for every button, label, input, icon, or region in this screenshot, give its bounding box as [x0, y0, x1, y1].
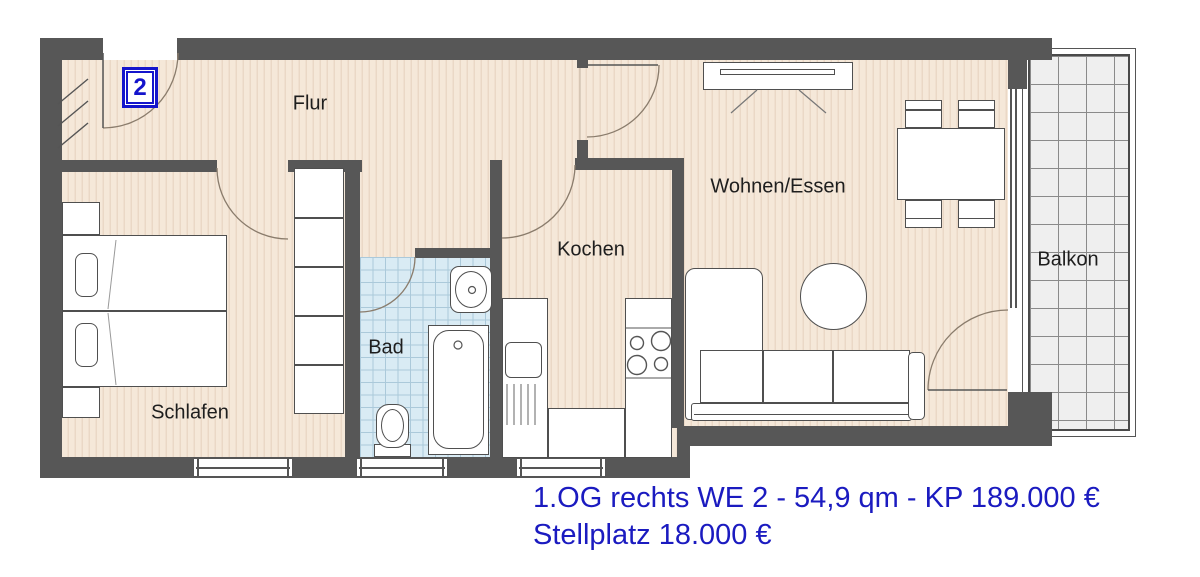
balcony-window-glass — [1015, 88, 1017, 308]
bathroom-sink-basin — [455, 271, 487, 308]
room-label-schlafen: Schlafen — [151, 402, 229, 425]
dining-chair — [905, 200, 942, 228]
dining-chair — [958, 200, 995, 228]
wall-left — [40, 38, 62, 478]
wall-bath-kitchen — [490, 160, 502, 458]
kitchen-counter-left — [502, 298, 548, 458]
toilet-bowl — [381, 409, 404, 442]
wall-stub-kitchen — [577, 140, 588, 160]
room-label-bad: Bad — [368, 337, 404, 360]
unit-number: 2 — [126, 71, 154, 104]
wall-hall-bath — [415, 248, 502, 258]
wall-kitchen-living — [672, 158, 684, 428]
sofa-seats — [700, 350, 910, 403]
wall-top-main — [177, 38, 1052, 60]
wall-bottom-living — [677, 426, 1052, 446]
wall-balcony-door-post — [1008, 392, 1052, 428]
bathtub-basin — [433, 330, 484, 449]
unit-number-badge: 2 — [122, 67, 158, 108]
coffee-table — [800, 263, 867, 330]
wall-bedroom-top-left — [62, 160, 217, 172]
wall-bedroom-bath — [345, 160, 360, 458]
caption-line-1: 1.OG rechts WE 2 - 54,9 qm - KP 189.000 … — [533, 480, 1100, 517]
kitchen-sink — [505, 342, 542, 378]
kitchen-counter-bottom — [548, 408, 625, 458]
room-label-kochen: Kochen — [557, 239, 625, 262]
room-label-wohnen-essen: Wohnen/Essen — [710, 176, 845, 199]
sofa-base — [691, 403, 912, 421]
sofa-seat-divider — [832, 350, 834, 403]
room-label-flur: Flur — [293, 93, 327, 116]
pillow — [75, 323, 98, 367]
listing-caption: 1.OG rechts WE 2 - 54,9 qm - KP 189.000 … — [533, 480, 1100, 554]
wall-kitchen-top — [575, 158, 684, 170]
sofa-seat-divider — [762, 350, 764, 403]
bathroom-window — [356, 457, 448, 478]
wall-stub-hall-living — [577, 58, 588, 68]
tv-sideboard — [703, 62, 853, 90]
nightstand — [62, 202, 100, 235]
room-label-balkon: Balkon — [1037, 249, 1098, 272]
bedroom-window — [193, 457, 293, 478]
dining-table — [897, 128, 1005, 200]
sofa-armrest — [908, 352, 925, 420]
tv-screen — [720, 69, 835, 75]
wardrobe — [294, 168, 344, 414]
kitchen-counter-right — [625, 298, 672, 458]
dining-chair — [905, 100, 942, 128]
dining-chair — [958, 100, 995, 128]
caption-line-2: Stellplatz 18.000 € — [533, 517, 1100, 554]
floor-plan: Flur Schlafen Bad Kochen Wohnen/Essen Ba… — [0, 0, 1200, 577]
pillow — [75, 253, 98, 297]
balcony-window-glass — [1010, 88, 1012, 308]
exterior-gap — [690, 446, 1008, 458]
nightstand — [62, 387, 100, 418]
wall-living-right-post — [1008, 53, 1027, 89]
balcony-tiles — [1028, 54, 1130, 431]
kitchen-window — [516, 457, 606, 478]
